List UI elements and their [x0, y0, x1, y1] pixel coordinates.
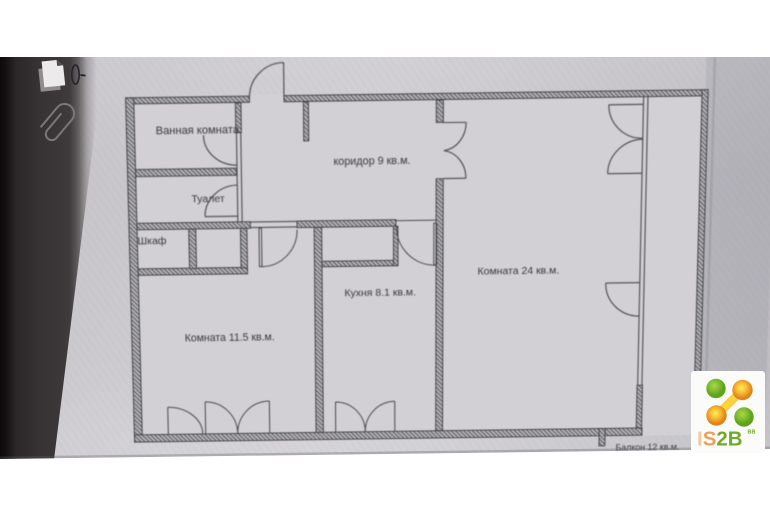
- svg-text:Комната 24 кв.м.: Комната 24 кв.м.: [477, 265, 559, 278]
- svg-text:ВВ: ВВ: [748, 430, 756, 436]
- svg-text:Туалет: Туалет: [191, 193, 225, 205]
- svg-text:Ванная комната: Ванная комната: [156, 124, 240, 137]
- svg-text:Кухня 8.1 кв.м.: Кухня 8.1 кв.м.: [344, 287, 416, 300]
- svg-text:IS2B: IS2B: [697, 428, 743, 451]
- svg-text:Комната 11.5 кв.м.: Комната 11.5 кв.м.: [185, 331, 275, 344]
- svg-text:коридор 9 кв.м.: коридор 9 кв.м.: [333, 155, 410, 168]
- svg-text:Шкаф: Шкаф: [137, 235, 167, 247]
